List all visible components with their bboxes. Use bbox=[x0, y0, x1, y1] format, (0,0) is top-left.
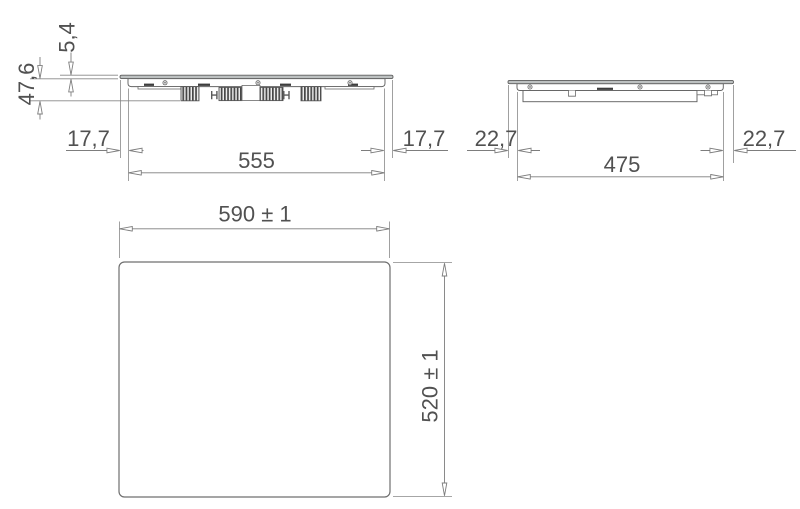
dim-front-left-overhang: 17,7 bbox=[66, 126, 144, 151]
heatsink-fins-3 bbox=[260, 87, 283, 100]
dim-body-depth: 475 bbox=[518, 152, 724, 177]
dimension-drawing: 5,4 47,6 17,7 17,7 bbox=[0, 0, 800, 504]
dim-side-left-overhang: 22,7 bbox=[467, 126, 540, 151]
dim-body-width: 555 bbox=[129, 148, 385, 173]
side-bracket-notch bbox=[705, 91, 712, 96]
dim-glass-thickness: 5,4 bbox=[55, 22, 80, 96]
h-bracket-detail-1 bbox=[212, 91, 217, 99]
side-notch-detail bbox=[569, 91, 576, 97]
dim-overall-depth: 520 ± 1 bbox=[418, 263, 445, 496]
front-bracket-right bbox=[325, 87, 374, 89]
side-vent-slot bbox=[597, 88, 613, 90]
dim-label-body-depth: 475 bbox=[604, 152, 641, 177]
front-glass-panel bbox=[120, 75, 393, 78]
dim-label-side-left-overhang: 22,7 bbox=[475, 126, 518, 151]
front-center-box bbox=[242, 85, 260, 100]
dim-side-right-overhang: 22,7 bbox=[701, 126, 797, 151]
front-view-dimensions: 5,4 47,6 17,7 17,7 bbox=[14, 22, 448, 181]
dim-label-glass-thickness: 5,4 bbox=[55, 22, 80, 53]
dim-installation-height: 47,6 bbox=[14, 57, 40, 120]
heatsink-fins-1 bbox=[181, 87, 199, 101]
heatsink-fins-4 bbox=[301, 87, 321, 101]
plan-glass-outline bbox=[119, 262, 390, 497]
dim-front-right-overhang: 17,7 bbox=[361, 126, 448, 151]
dim-label-front-right-overhang: 17,7 bbox=[403, 126, 446, 151]
front-view: 5,4 47,6 17,7 17,7 bbox=[14, 22, 448, 181]
dim-label-installation-height: 47,6 bbox=[14, 63, 39, 106]
heatsink-fins-2 bbox=[219, 87, 242, 100]
side-flange bbox=[517, 84, 723, 91]
plan-view: 590 ± 1 520 ± 1 bbox=[119, 202, 452, 498]
dim-label-side-right-overhang: 22,7 bbox=[743, 126, 786, 151]
side-glass-panel bbox=[508, 80, 734, 83]
dim-label-overall-width: 590 ± 1 bbox=[218, 202, 291, 227]
h-bracket-detail-2 bbox=[284, 91, 289, 99]
dim-label-body-width: 555 bbox=[238, 148, 275, 173]
front-bracket-left bbox=[138, 87, 181, 89]
side-view-device bbox=[508, 80, 734, 101]
side-view: 22,7 22,7 475 bbox=[467, 80, 796, 181]
front-view-device bbox=[120, 75, 393, 101]
dimension-drawing-page: 5,4 47,6 17,7 17,7 bbox=[0, 0, 800, 504]
dim-label-overall-depth: 520 ± 1 bbox=[418, 349, 443, 422]
dim-overall-width: 590 ± 1 bbox=[120, 202, 390, 229]
side-main-box bbox=[523, 91, 697, 102]
dim-label-front-left-overhang: 17,7 bbox=[67, 126, 110, 151]
